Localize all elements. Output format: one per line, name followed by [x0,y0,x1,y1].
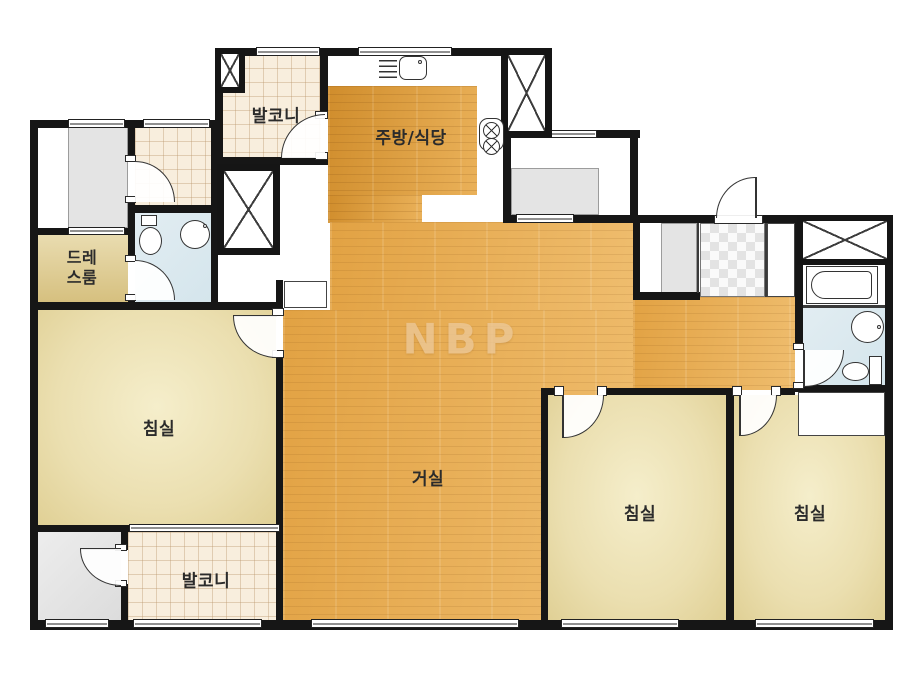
shoe-closet [661,223,697,293]
wall [128,205,218,213]
floor-plan: 발코니 주방/식당 드레 스룸 침실 거실 발코니 침실 침실 NBP [0,0,923,676]
bedroom-right-closet [798,392,885,436]
partition [803,305,885,308]
door-panel [755,177,757,218]
duct-shaft [797,215,893,265]
wall [30,302,283,310]
wall [320,48,328,117]
wall [633,292,700,300]
window [311,619,519,628]
window [68,119,125,128]
living-cabinet [284,281,327,308]
window [143,119,210,128]
partition [765,223,767,297]
watermark: NBP [403,315,522,364]
toilet-tank [869,356,882,385]
wardrobe-top-left [68,127,128,228]
entry-side-closet [767,223,795,297]
window [256,47,320,56]
wall [121,584,128,620]
window [755,619,874,628]
duct-shaft [501,48,552,138]
window [358,47,452,56]
wall [128,120,135,158]
window [129,524,280,532]
wall [503,138,511,223]
wall [726,395,734,620]
stove-burner [483,122,500,139]
entry-door-swing [716,177,755,218]
toilet-tank [141,215,157,226]
wall [600,388,733,395]
wall [276,354,283,620]
door-frame [793,343,804,350]
entry-floor [700,223,765,297]
room-label-kitchen: 주방/식당 [375,124,446,149]
duct-shaft [217,164,280,255]
basin-faucet [203,224,207,228]
kitchen-dish-rack [379,60,397,79]
kitchen-faucet [418,60,422,64]
window [68,227,125,235]
room-label-bedroom-right: 침실 [794,500,826,525]
partition [697,223,699,293]
kitchen-wood-floor-2 [328,195,422,223]
kitchen-sink [399,56,427,80]
basin-faucet [877,325,881,329]
wall [630,130,638,222]
hall-wood-floor [633,297,795,390]
wall [633,222,640,300]
window [133,619,262,628]
living-wood-floor-upper [330,222,633,310]
window [550,130,597,138]
room-label-bedroom-left: 침실 [143,415,175,440]
dress-room-line2: 스룸 [67,268,97,288]
window [561,619,679,628]
room-label-dress-room: 드레 스룸 [67,248,97,288]
toilet [139,227,162,255]
window [45,619,109,628]
duct-shaft [215,48,245,93]
dress-room-line1: 드레 [67,248,97,268]
stove-burner [483,138,500,155]
wall [30,120,38,630]
room-label-balcony-top: 발코니 [252,102,300,127]
utility-appliance [511,168,599,215]
bathtub-inner [811,271,872,299]
room-label-bedroom-center: 침실 [624,500,656,525]
window [516,214,574,223]
wall [885,215,893,630]
room-label-living-room: 거실 [412,465,444,490]
wall [541,395,548,620]
room-label-balcony-bottom: 발코니 [182,567,230,592]
toilet [842,362,869,381]
